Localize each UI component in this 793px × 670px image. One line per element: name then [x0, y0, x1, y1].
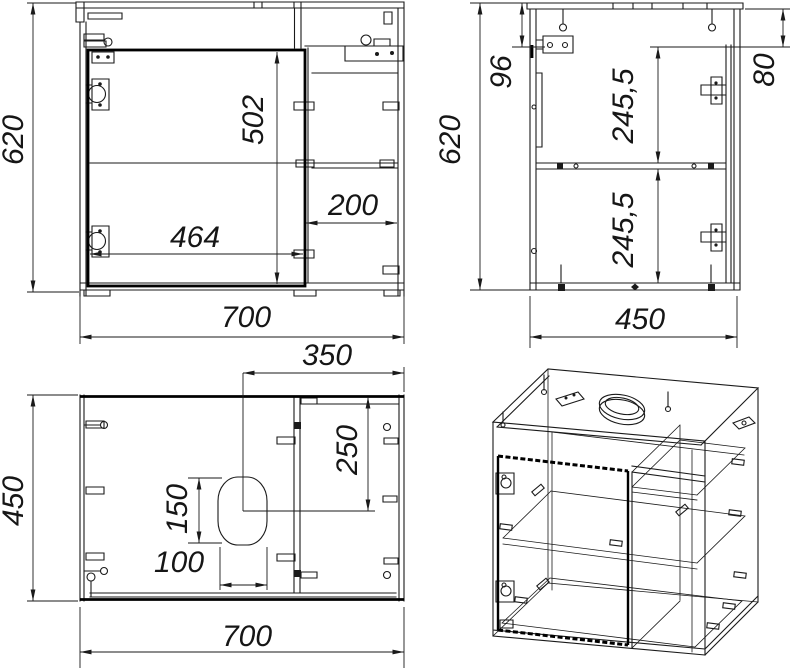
- screw-icon: [560, 24, 567, 31]
- dim-front-door-height: 502: [237, 95, 270, 145]
- side-view-dimensions: [470, 3, 790, 348]
- hinge-icon: [89, 233, 106, 250]
- side-view: 620 96 80 245,5 245,5 450: [434, 3, 790, 348]
- top-view: 450 350 250 150 100 700: [0, 339, 404, 668]
- dim-front-height: 620: [0, 115, 30, 165]
- dim-top-width: 700: [222, 620, 272, 653]
- dim-front-right-width: 200: [327, 189, 378, 222]
- dim-top-cutout-right: 350: [302, 339, 352, 372]
- dim-side-rail-height: 80: [748, 53, 781, 87]
- dim-side-lower-section: 245,5: [607, 192, 640, 268]
- hinge-icon: [89, 86, 106, 103]
- drawing-sheet: 620 502 464 200 700 620 96: [0, 0, 793, 670]
- isometric-view: [493, 369, 758, 655]
- front-view-linework: [76, 2, 404, 296]
- isometric-linework: [493, 369, 758, 655]
- screw-icon: [709, 24, 716, 31]
- fitting-marks: [500, 459, 747, 629]
- dim-side-top-offset: 96: [485, 55, 518, 89]
- dim-side-upper-section: 245,5: [607, 68, 640, 144]
- dim-side-depth: 450: [615, 303, 665, 336]
- isometric-door: [498, 456, 628, 645]
- dim-top-cutout-width: 100: [154, 546, 204, 579]
- dim-top-depth: 450: [0, 476, 30, 526]
- dim-front-width: 700: [221, 301, 271, 334]
- dim-top-cutout-length: 150: [161, 484, 194, 534]
- drawing-canvas: 620 502 464 200 700 620 96: [0, 0, 793, 670]
- dim-side-height: 620: [434, 115, 467, 165]
- sink-hole: [597, 390, 647, 428]
- front-view: 620 502 464 200 700: [0, 2, 404, 344]
- dim-front-left-width: 464: [170, 221, 220, 254]
- dim-top-cutout-front: 250: [331, 425, 364, 476]
